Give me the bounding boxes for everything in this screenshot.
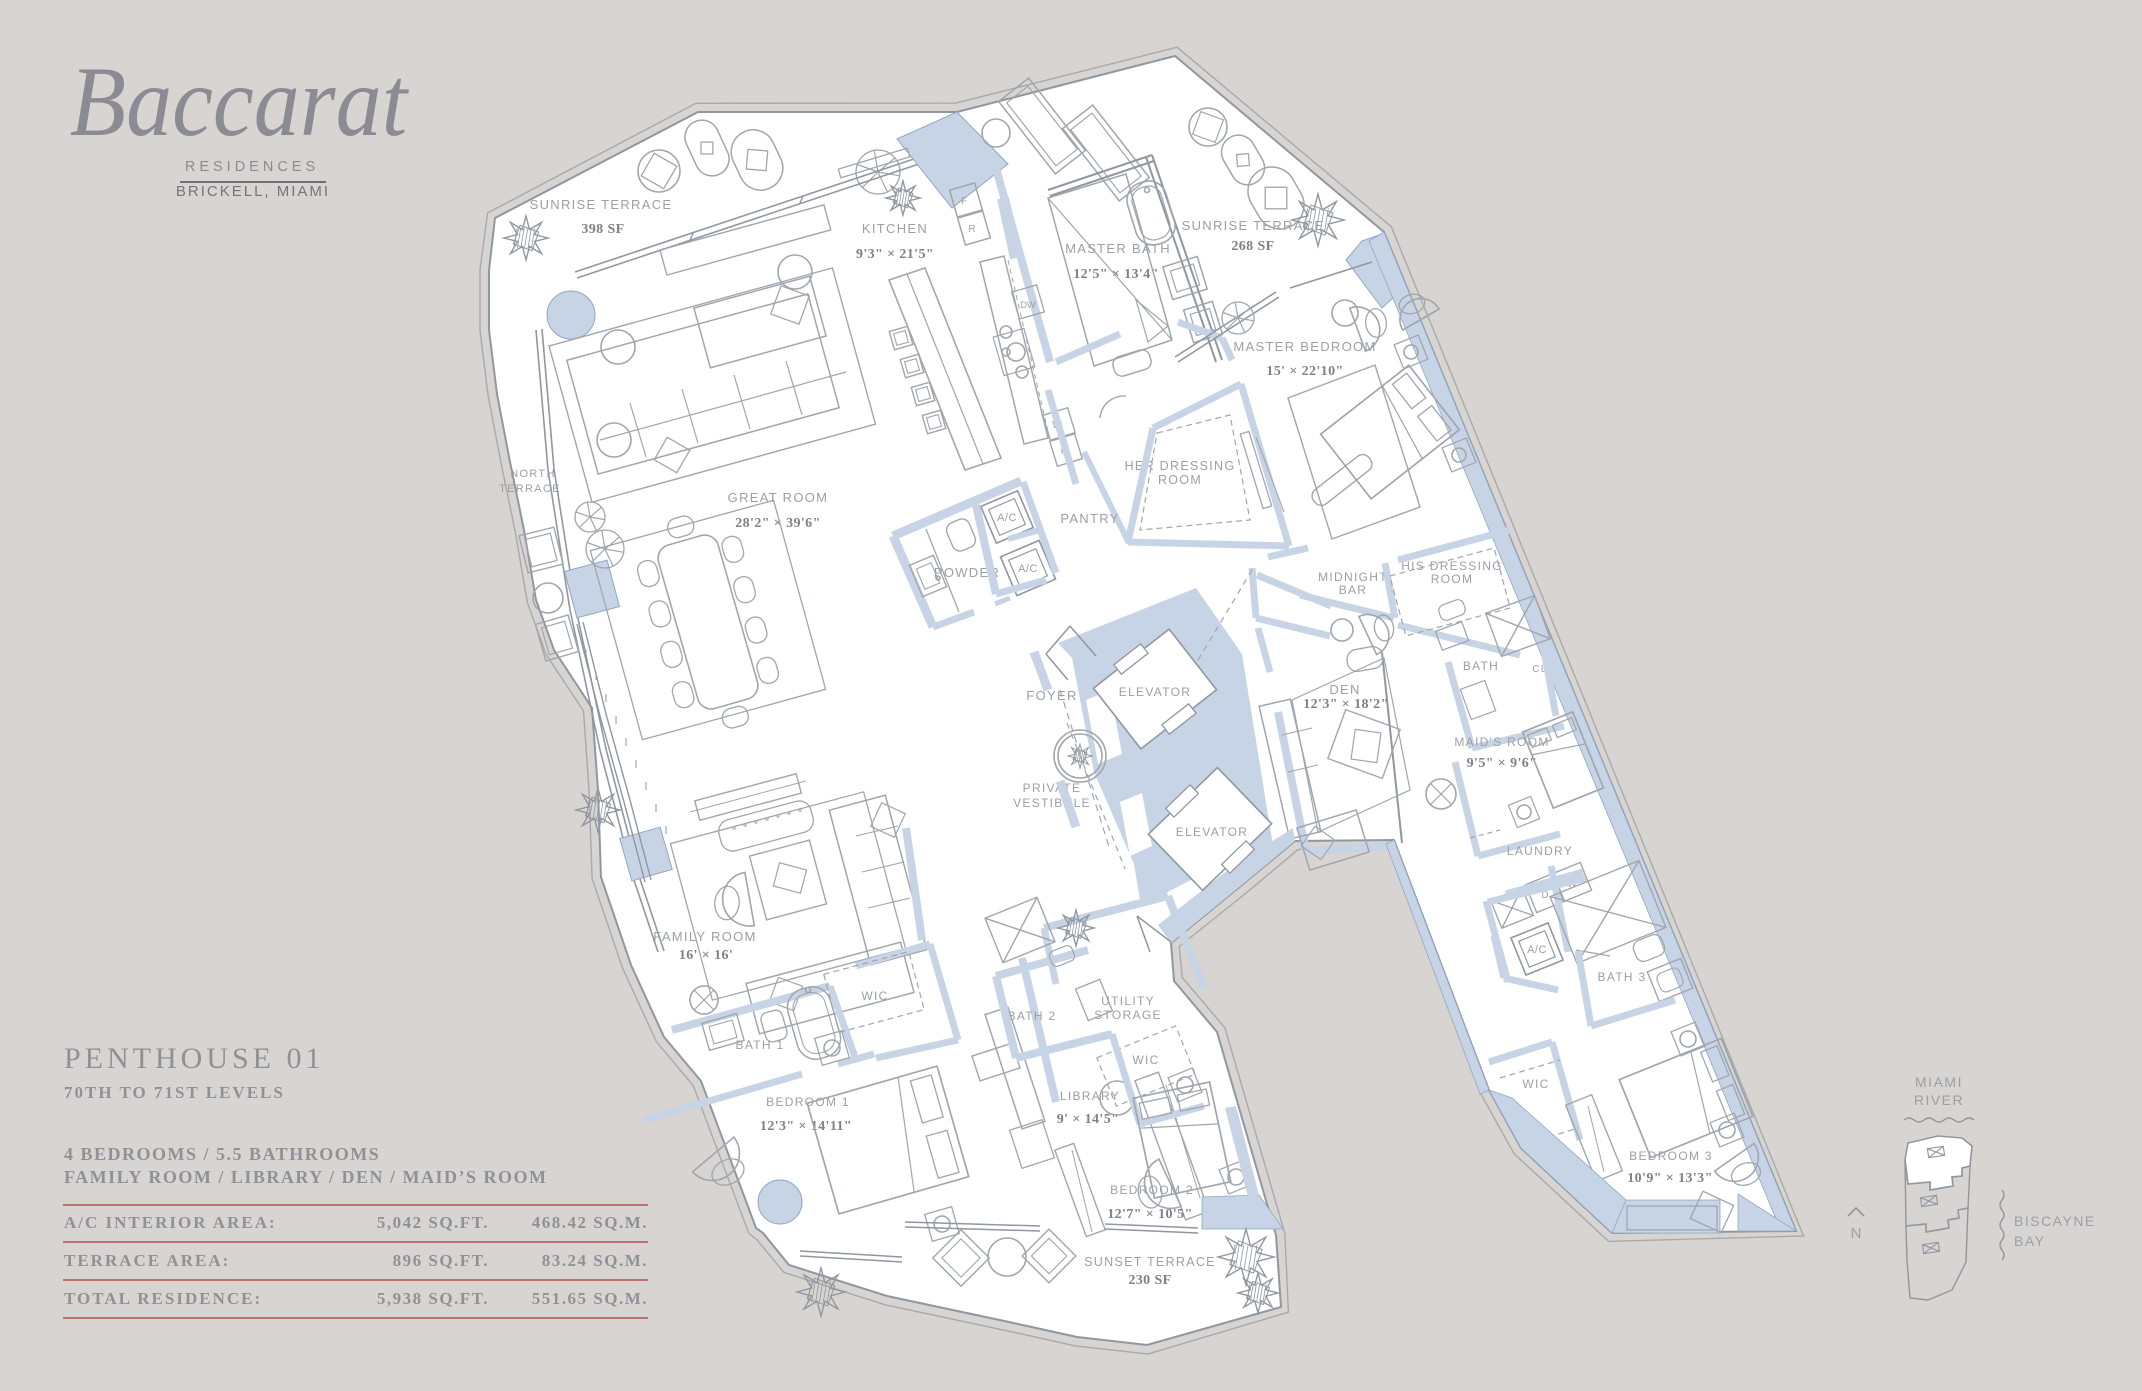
- svg-text:A/C INTERIOR AREA:: A/C INTERIOR AREA:: [64, 1213, 277, 1232]
- svg-text:NORTH: NORTH: [510, 468, 555, 480]
- svg-text:12'5" × 13'4": 12'5" × 13'4": [1073, 267, 1159, 282]
- svg-text:BAY: BAY: [2014, 1233, 2045, 1249]
- svg-text:A/C: A/C: [997, 512, 1017, 524]
- svg-text:9'3" × 21'5": 9'3" × 21'5": [856, 247, 934, 262]
- svg-text:WIC: WIC: [1522, 1077, 1549, 1091]
- svg-text:PANTRY: PANTRY: [1060, 511, 1119, 526]
- svg-text:BAR: BAR: [1339, 583, 1368, 597]
- svg-text:468.42 SQ.M.: 468.42 SQ.M.: [532, 1213, 648, 1232]
- svg-text:268 SF: 268 SF: [1231, 239, 1274, 254]
- svg-text:ROOM: ROOM: [1158, 473, 1202, 487]
- svg-text:FOYER: FOYER: [1026, 688, 1077, 703]
- svg-text:KITCHEN: KITCHEN: [862, 221, 928, 236]
- svg-text:15' × 22'10": 15' × 22'10": [1266, 364, 1343, 379]
- svg-text:UTILITY: UTILITY: [1101, 994, 1155, 1008]
- svg-text:STORAGE: STORAGE: [1094, 1008, 1162, 1022]
- svg-text:PRIVATE: PRIVATE: [1023, 781, 1082, 795]
- svg-text:FAMILY ROOM / LIBRARY / DEN /: FAMILY ROOM / LIBRARY / DEN / MAID’S ROO…: [64, 1167, 548, 1187]
- svg-text:896 SQ.FT.: 896 SQ.FT.: [393, 1251, 489, 1270]
- svg-text:12'3" × 14'11": 12'3" × 14'11": [760, 1119, 852, 1134]
- svg-text:MIAMI: MIAMI: [1915, 1074, 1963, 1090]
- svg-text:F: F: [961, 196, 967, 207]
- svg-text:TERRACE: TERRACE: [499, 483, 561, 495]
- svg-text:LAUNDRY: LAUNDRY: [1507, 844, 1573, 858]
- svg-text:BRICKELL, MIAMI: BRICKELL, MIAMI: [176, 183, 330, 200]
- svg-text:TERRACE AREA:: TERRACE AREA:: [64, 1251, 230, 1270]
- svg-text:12'7" × 10'5": 12'7" × 10'5": [1107, 1207, 1193, 1222]
- svg-text:TOTAL RESIDENCE:: TOTAL RESIDENCE:: [64, 1289, 262, 1308]
- svg-text:HIS DRESSING: HIS DRESSING: [1401, 559, 1503, 573]
- svg-text:LIBRARY: LIBRARY: [1060, 1089, 1120, 1103]
- svg-text:R: R: [968, 224, 975, 235]
- svg-text:DEN: DEN: [1329, 682, 1360, 697]
- svg-text:A/C: A/C: [1018, 563, 1038, 575]
- svg-text:GREAT ROOM: GREAT ROOM: [728, 490, 829, 505]
- svg-text:16' × 16': 16' × 16': [679, 948, 733, 963]
- svg-text:SUNRISE TERRACE: SUNRISE TERRACE: [1182, 218, 1325, 233]
- svg-text:70TH TO 71ST LEVELS: 70TH TO 71ST LEVELS: [64, 1083, 285, 1102]
- svg-text:MIDNIGHT: MIDNIGHT: [1318, 570, 1388, 584]
- svg-text:WIC: WIC: [1132, 1053, 1159, 1067]
- svg-text:BEDROOM 3: BEDROOM 3: [1629, 1149, 1713, 1163]
- svg-text:Baccarat: Baccarat: [70, 45, 409, 156]
- svg-text:551.65 SQ.M.: 551.65 SQ.M.: [532, 1289, 648, 1308]
- svg-text:BATH 2: BATH 2: [1008, 1009, 1057, 1023]
- svg-text:RIVER: RIVER: [1914, 1092, 1964, 1108]
- svg-text:BATH: BATH: [1463, 659, 1499, 673]
- svg-text:BATH 3: BATH 3: [1598, 970, 1647, 984]
- svg-text:ROOM: ROOM: [1431, 572, 1474, 586]
- svg-text:SUNSET TERRACE: SUNSET TERRACE: [1084, 1255, 1216, 1269]
- svg-text:RESIDENCES: RESIDENCES: [185, 159, 319, 175]
- svg-text:MASTER BEDROOM: MASTER BEDROOM: [1233, 339, 1376, 354]
- svg-text:10'9" × 13'3": 10'9" × 13'3": [1627, 1171, 1713, 1186]
- svg-text:FAMILY ROOM: FAMILY ROOM: [653, 929, 756, 944]
- svg-text:230 SF: 230 SF: [1128, 1273, 1171, 1288]
- svg-text:A/C: A/C: [1527, 944, 1547, 956]
- svg-text:DW: DW: [1021, 300, 1036, 310]
- svg-text:83.24 SQ.M.: 83.24 SQ.M.: [542, 1251, 648, 1270]
- svg-text:PENTHOUSE 01: PENTHOUSE 01: [64, 1042, 325, 1075]
- svg-text:398 SF: 398 SF: [581, 222, 624, 237]
- svg-text:MASTER BATH: MASTER BATH: [1065, 241, 1171, 256]
- svg-text:4 BEDROOMS / 5.5 BATHROOMS: 4 BEDROOMS / 5.5 BATHROOMS: [64, 1144, 380, 1164]
- svg-text:WIC: WIC: [861, 989, 888, 1003]
- svg-text:ELEVATOR: ELEVATOR: [1176, 825, 1248, 839]
- svg-text:9'5" × 9'6": 9'5" × 9'6": [1467, 756, 1538, 771]
- svg-text:5,938 SQ.FT.: 5,938 SQ.FT.: [377, 1289, 489, 1308]
- svg-text:ELEVATOR: ELEVATOR: [1119, 685, 1191, 699]
- svg-text:VESTIBULE: VESTIBULE: [1013, 796, 1091, 810]
- svg-text:N: N: [1851, 1225, 1862, 1242]
- svg-text:BISCAYNE: BISCAYNE: [2014, 1213, 2096, 1229]
- svg-text:5,042 SQ.FT.: 5,042 SQ.FT.: [377, 1213, 489, 1232]
- svg-text:SUNRISE TERRACE: SUNRISE TERRACE: [530, 197, 673, 212]
